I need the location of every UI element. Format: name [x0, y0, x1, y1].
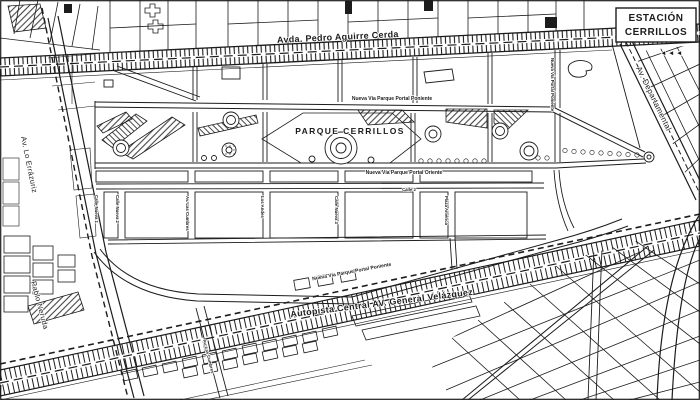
label-portal-poniente-sur: Nueva Vía Parque Portal Poniente	[312, 262, 392, 283]
label-las-cumbres: Av. Las Cumbres	[185, 196, 190, 231]
station-name-line2: CERRILLOS	[625, 27, 687, 38]
label-plaza-america: Plaza América	[444, 196, 449, 226]
label-lo-errazuriz: Av. Lo Errázuriz	[19, 136, 39, 194]
station-box: ESTACIÓN CERRILLOS ◄◄◄	[616, 8, 696, 57]
train-track-icon: ◄◄◄	[660, 50, 684, 57]
label-departamental: Av. Departamental	[634, 65, 673, 132]
road-pablo-neruda	[96, 252, 144, 398]
west-parcels	[3, 54, 96, 238]
map-canvas: ESTACIÓN CERRILLOS ◄◄◄	[0, 0, 700, 400]
station-name-line1: ESTACIÓN	[629, 11, 684, 24]
label-los-andes: Los Andes	[260, 196, 265, 218]
parque-cerrillos-area	[97, 109, 654, 164]
curved-street	[554, 170, 574, 231]
label-calle-nueva-3: Calle Nueva 3	[334, 196, 339, 225]
label-portal-poniente-norte: Nueva Vía Parque Portal Poniente	[352, 96, 433, 102]
street-labels: Avda. Pedro Aguirre Cerda Autopista Cent…	[19, 29, 673, 374]
label-portal-poniente-vertical: Nueva Vía Portal Poniente	[550, 58, 555, 112]
cross-buildings	[145, 4, 163, 33]
label-calle-nueva-1: Calle Nueva 1	[94, 195, 99, 224]
label-calle-nueva-2: Calle Nueva 2	[115, 195, 120, 224]
blob-building	[568, 60, 592, 77]
label-parque-cerrillos: PARQUE CERRILLOS	[295, 126, 405, 136]
label-portal-oriente: Nueva Vía Parque Portal Oriente	[366, 170, 443, 176]
label-calle-2: Calle 2	[402, 187, 416, 192]
scanned-map: ESTACIÓN CERRILLOS ◄◄◄	[0, 0, 700, 400]
